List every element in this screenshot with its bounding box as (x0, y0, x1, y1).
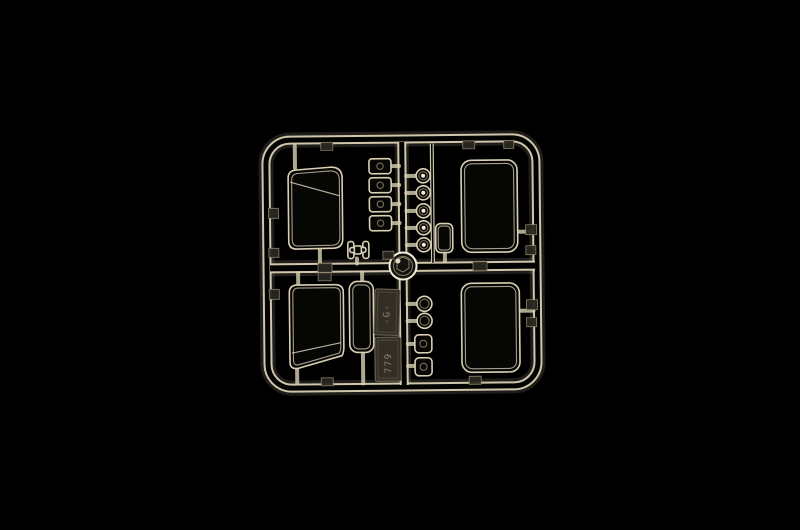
photo-canvas: -G- 779 (0, 0, 800, 530)
part-round-lens (417, 221, 431, 235)
part-windshield-bottom-left (289, 285, 344, 369)
marking-code-bottom: 779 (384, 352, 394, 373)
part-square-lens (369, 159, 391, 174)
marking-plate-top: -G- (374, 289, 400, 336)
part-round-lens (416, 186, 430, 200)
part-window-large-bottom-right (461, 283, 520, 373)
sprue-photo: -G- 779 (0, 0, 800, 530)
part-round-lens (416, 204, 430, 218)
part-square-lens (369, 197, 391, 212)
part-windshield-top-left (288, 167, 343, 249)
part-ring-lens (417, 313, 432, 328)
marking-plate-bottom: 779 (375, 337, 401, 381)
part-square-lens (369, 216, 391, 231)
part-round-lens-column (416, 169, 431, 252)
part-square-lens (369, 178, 391, 193)
part-ring-lens (417, 296, 432, 311)
part-square-lamp (415, 335, 432, 353)
sprue: -G- 779 (266, 138, 539, 389)
part-round-lens (416, 169, 430, 183)
part-square-lamp (415, 358, 432, 376)
marking-code-top: -G- (382, 303, 393, 324)
part-window-tall-narrow (349, 281, 374, 352)
part-window-large-top-right (461, 160, 518, 253)
rail-vertical-thin (432, 144, 433, 263)
part-round-lens (417, 238, 431, 252)
part-window-small (436, 223, 453, 252)
